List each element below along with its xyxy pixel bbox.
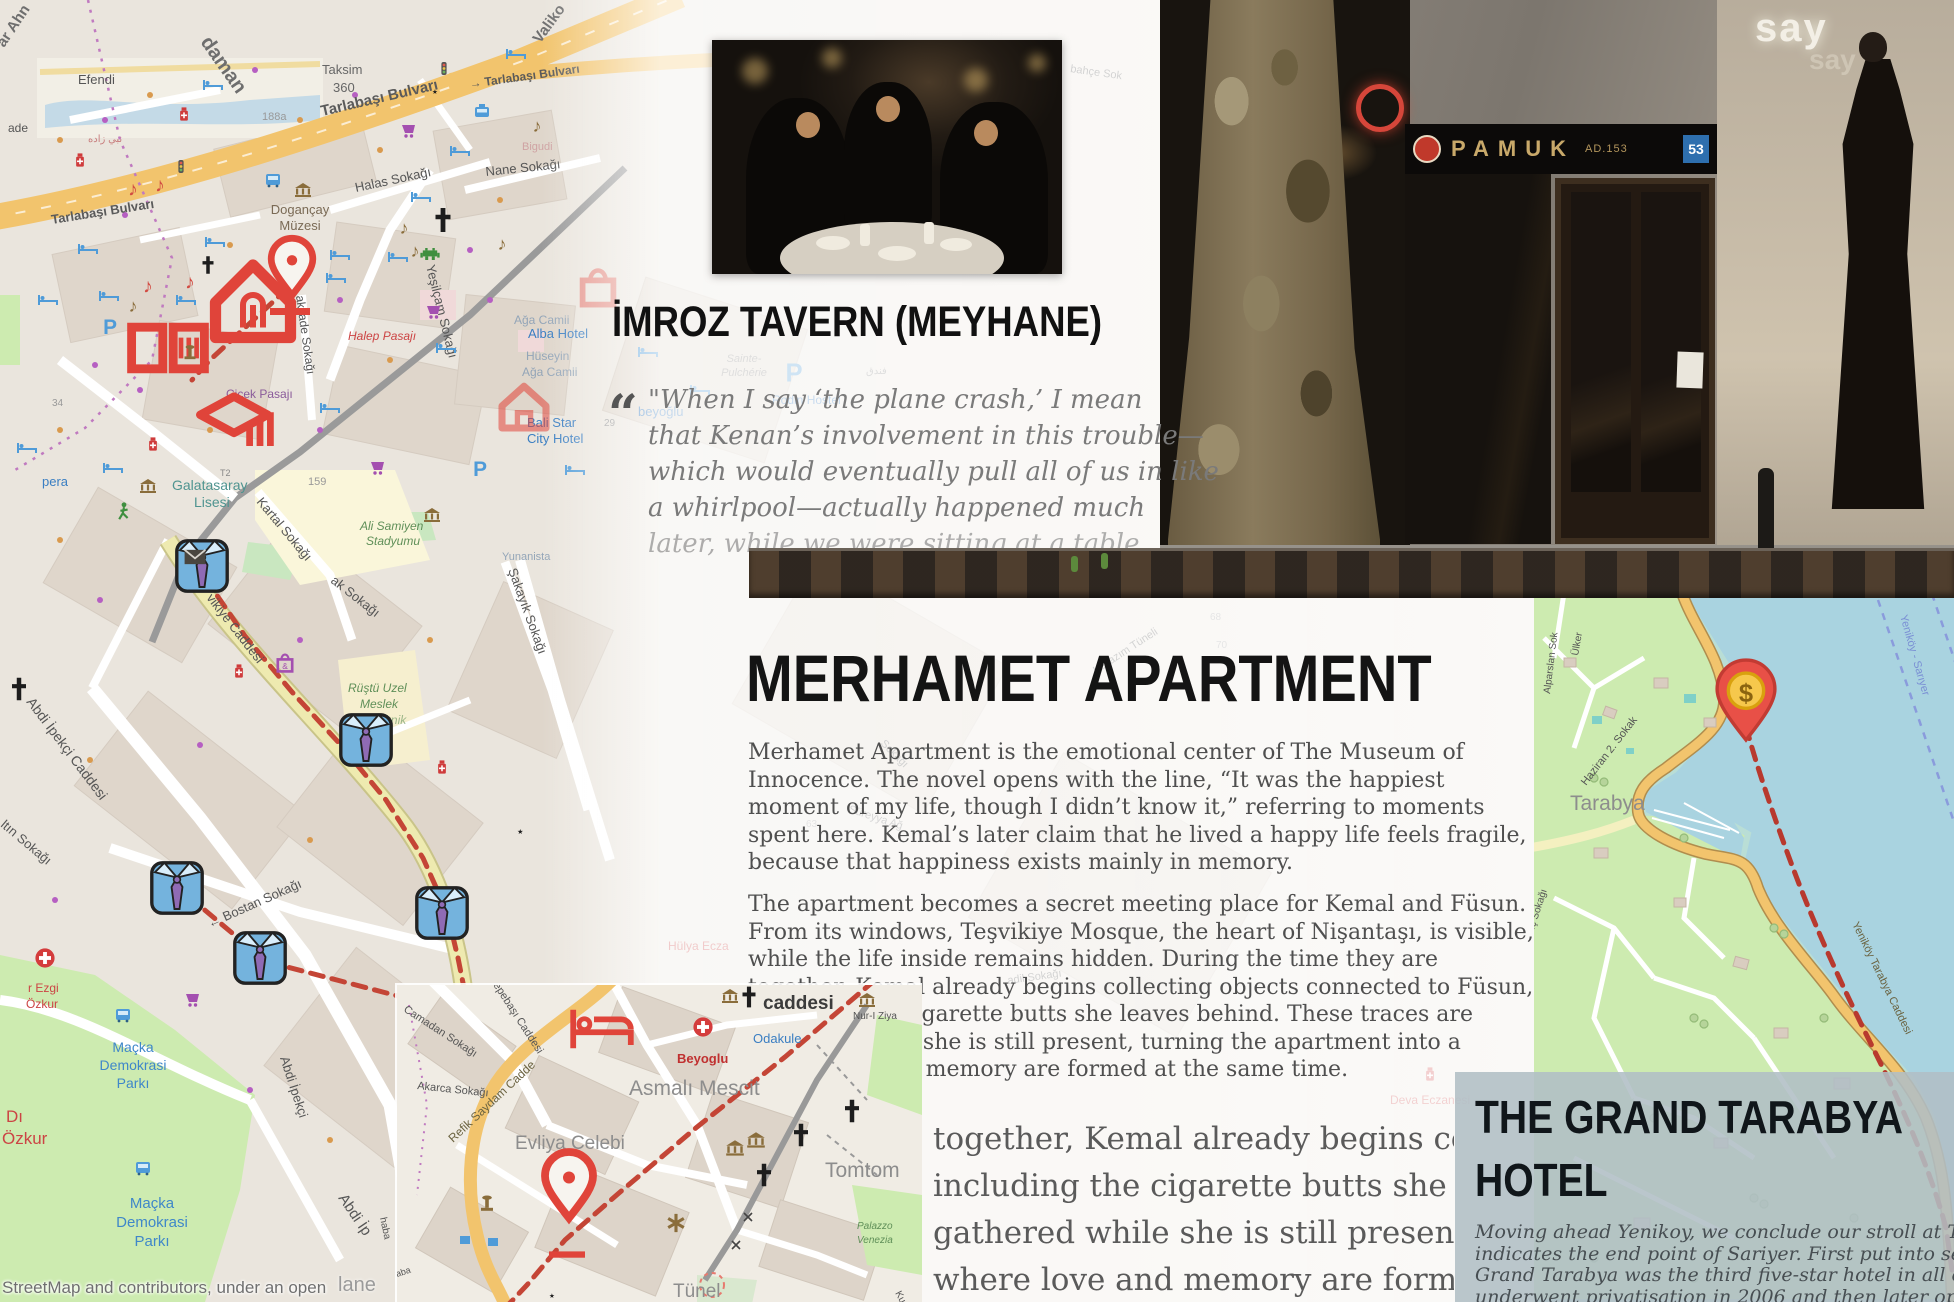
map-attribution-fragment: lane (338, 1274, 376, 1297)
text-line: which would eventually pull all of us in… (648, 454, 1188, 490)
imroz-title: İMROZ TAVERN (MEYHANE) (612, 298, 1102, 347)
glass (860, 224, 870, 246)
tunel-map: Camadan Sokağıepebaşı CaddesiAkarca Soka… (395, 983, 922, 1302)
door-glass (1571, 192, 1631, 492)
panel-body-text: Moving ahead Yenikoy, we conclude our st… (1475, 1222, 1954, 1302)
map-label: Tomtom (825, 1159, 900, 1182)
light-bokeh (1028, 54, 1046, 72)
text-line: gathered while she is still present, tur… (933, 1210, 1454, 1257)
text-line: a whirlpool—actually happened much (648, 490, 1188, 526)
imroz-section: İMROZ TAVERN (MEYHANE) “ "When I say ‘th… (612, 298, 1172, 347)
plant-sprig (1101, 553, 1108, 569)
map-label: Asmalı Mescit (629, 1077, 760, 1100)
text-line: Merhamet Apartment is the emotional cent… (748, 739, 1527, 767)
tunel-map-svg: Camadan Sokağıepebaşı CaddesiAkarca Soka… (397, 985, 922, 1302)
imroz-quote: "When I say ‘the plane crash,’ I meantha… (648, 382, 1188, 562)
map-label: Tünel (673, 1281, 721, 1302)
door-glass (1641, 192, 1701, 492)
storefront-photo: PAMUK AD.153 53 say say (1160, 0, 1954, 598)
grand-tarabya-panel: THE GRAND TARABYA HOTEL Moving ahead Yen… (1455, 1072, 1954, 1302)
map-label: Beyoglu (677, 1051, 728, 1066)
page-canvas: ♪ ♪ $ P ★ & (0, 0, 1954, 1302)
bluebox-icon (488, 1238, 498, 1246)
text-line: that Kenan’s involvement in this trouble… (648, 418, 1188, 454)
sign-suffix: AD.153 (1585, 143, 1628, 155)
merhamet-section-title-wrap: MERHAMET APARTMENT (746, 640, 1553, 716)
mannequin-head (1859, 32, 1887, 62)
panel-title-line2: HOTEL (1475, 1149, 1608, 1212)
light-bokeh (742, 58, 768, 84)
diner-face (796, 112, 820, 138)
merhamet-title: MERHAMET APARTMENT (746, 640, 1432, 716)
mannequin-black-dress (1801, 24, 1954, 524)
map-label: caddesi (763, 993, 834, 1014)
diner-face (974, 120, 998, 146)
text-line: Grand Tarabya was the third five-star ho… (1475, 1265, 1954, 1287)
glass (924, 222, 934, 244)
shop-sign: PAMUK AD.153 53 (1405, 124, 1717, 174)
text-line: The apartment becomes a secret meeting p… (748, 891, 1534, 919)
text-line: where love and memory are formed at (933, 1257, 1454, 1302)
door-notice-paper (1676, 352, 1703, 389)
light-bokeh (964, 68, 988, 92)
door-number-plaque: 53 (1683, 135, 1709, 163)
text-line: indicates the end point of Sariyer. Firs… (1475, 1244, 1954, 1266)
merhamet-paragraph-1: Merhamet Apartment is the emotional cent… (748, 739, 1527, 877)
bollard (1758, 468, 1774, 548)
redbar-icon (549, 1251, 585, 1257)
panel-title-line1: THE GRAND TARABYA (1475, 1086, 1903, 1149)
map-label: Nur-I Ziya (853, 1011, 897, 1022)
overlapping-large-text: together, Kemal already begins collectin… (933, 1116, 1454, 1302)
text-line: together, Kemal already begins collectin… (933, 1116, 1454, 1163)
planter-strip (749, 548, 1954, 598)
facade-right: say say (1717, 0, 1954, 598)
light-bokeh (822, 48, 842, 68)
text-line: because that happiness exists mainly in … (748, 849, 1527, 877)
firstaid-icon (693, 1017, 712, 1036)
plate (940, 238, 972, 251)
map-label: Palazzo (857, 1221, 893, 1232)
plate (816, 236, 850, 250)
text-line: "When I say ‘the plane crash,’ I mean (648, 382, 1188, 418)
text-line: including the cigarette butts she leaves (933, 1163, 1454, 1210)
sign-text: PAMUK (1451, 136, 1575, 162)
text-line: Moving ahead Yenikoy, we conclude our st… (1475, 1222, 1954, 1244)
map-label: Odakule (753, 1031, 801, 1046)
text-line: From its windows, Teşvikiye Mosque, the … (748, 919, 1534, 947)
diner-face (876, 96, 900, 122)
shop-window (1405, 174, 1551, 544)
entrance-door (1555, 178, 1715, 544)
text-line: spent here. Kemal’s later claim that he … (748, 822, 1527, 850)
text-line: underwent privatisation in 2006 and then… (1475, 1287, 1954, 1302)
quote-mark: “ (608, 384, 638, 445)
text-line: while the life inside remains hidden. Du… (748, 946, 1534, 974)
text-line: moment of my life, though I didn’t know … (748, 794, 1527, 822)
plate (878, 246, 916, 261)
bluebox-icon (460, 1236, 470, 1244)
map-label: Tarabya (1570, 792, 1645, 815)
text-line: Innocence. The novel opens with the line… (748, 767, 1527, 795)
red-neon-lamp (1356, 84, 1404, 132)
tavern-photo (712, 40, 1062, 274)
black-dress (1801, 24, 1954, 524)
map-label: Venezia (857, 1235, 893, 1246)
map-attribution: StreetMap and contributors, under an ope… (2, 1278, 326, 1298)
sign-logo-icon (1413, 135, 1441, 163)
plant-sprig (1071, 556, 1078, 572)
